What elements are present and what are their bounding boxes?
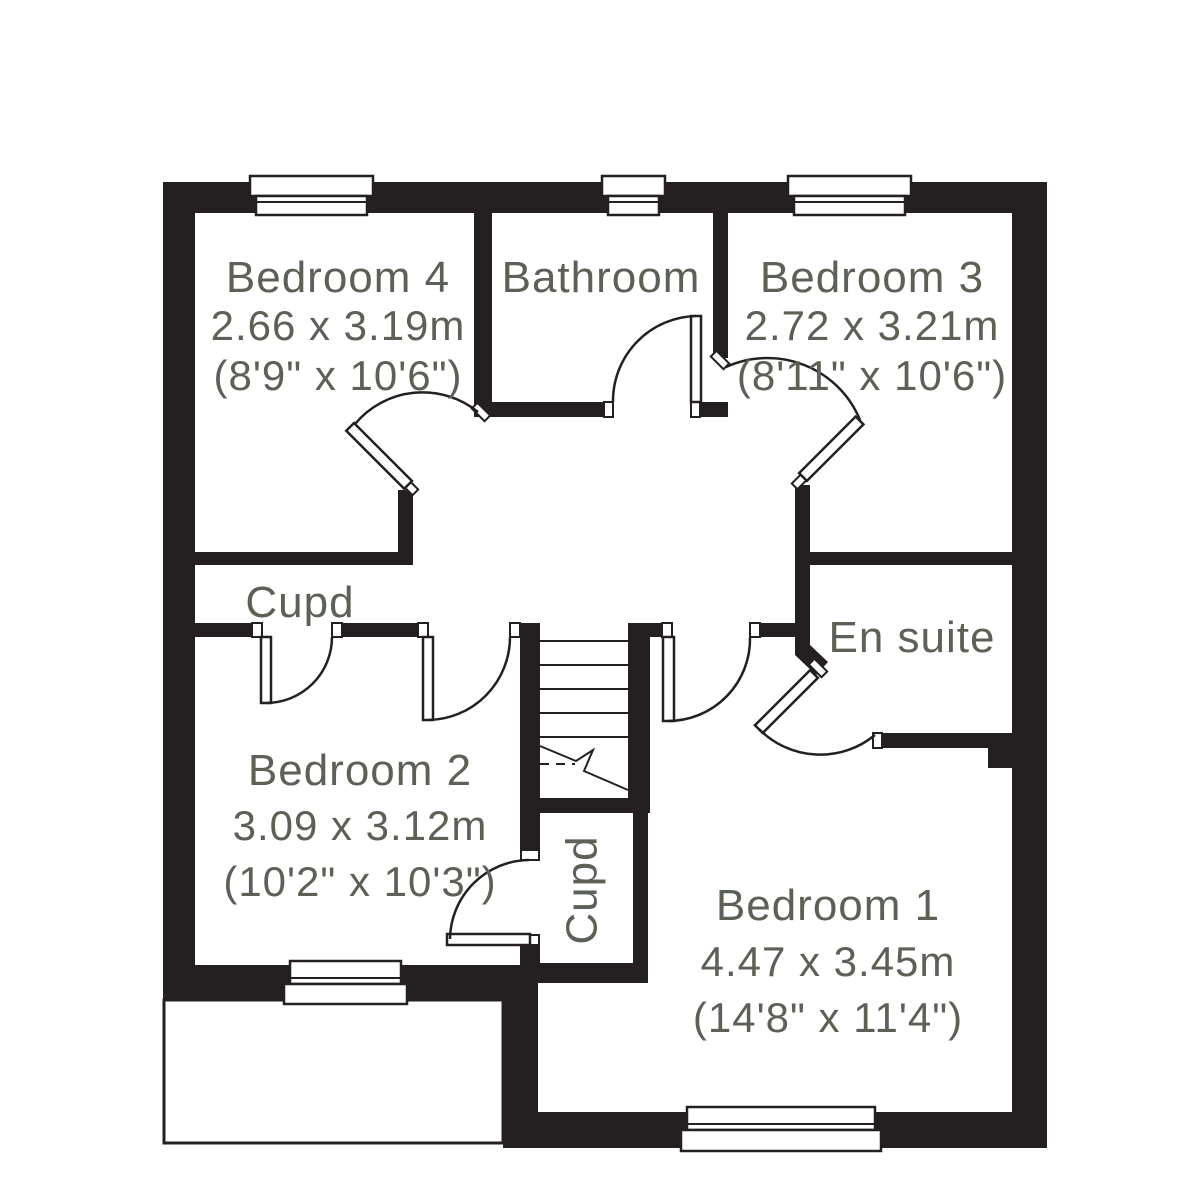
wall-bathroom-west: [474, 213, 492, 409]
wall-stair-east: [628, 623, 650, 813]
bedroom2-size-metric: 3.09 x 3.12m: [233, 802, 488, 849]
window-bedroom1: [681, 1107, 881, 1151]
window-bathroom: [602, 176, 665, 215]
wall-ensuite-south-step: [988, 748, 1012, 768]
bedroom3-size-imperial: (8'11" x 10'6"): [737, 352, 1007, 399]
wall-stair-west: [520, 623, 540, 850]
wall-ensuite-west: [795, 485, 810, 648]
wall-bathroom-east: [713, 213, 728, 358]
wall-stair-bottom: [520, 798, 650, 813]
bathroom-name: Bathroom: [502, 253, 701, 302]
wall-cupboard-bottom: [522, 963, 648, 983]
bedroom3-size-metric: 2.72 x 3.21m: [745, 302, 1000, 349]
cupboard-understairs-name: Cupd: [558, 835, 607, 944]
label-cupboard-landing: Cupd: [245, 578, 354, 627]
window-bedroom2: [284, 961, 407, 1004]
ensuite-name: En suite: [829, 613, 996, 662]
label-bathroom: Bathroom: [502, 253, 701, 302]
bedroom4-name: Bedroom 4: [226, 253, 450, 302]
wall-ensuite-south: [875, 733, 1012, 748]
wall-bathroom-south-left: [474, 402, 613, 417]
bedroom1-size-metric: 4.47 x 3.45m: [701, 938, 956, 985]
bedroom4-size-imperial: (8'9" x 10'6"): [214, 352, 463, 399]
wall-bedroom4-post: [398, 490, 413, 565]
wall-right: [1012, 182, 1047, 1148]
wall-bedroom4-south: [195, 552, 413, 565]
label-bedroom3: Bedroom 3 2.72 x 3.21m (8'11" x 10'6"): [737, 253, 1007, 399]
bedroom1-name: Bedroom 1: [716, 881, 940, 930]
label-bedroom1: Bedroom 1 4.47 x 3.45m (14'8" x 11'4"): [693, 881, 963, 1041]
wall-landing-seg1: [195, 623, 252, 637]
window-bedroom4: [250, 176, 373, 215]
label-bedroom4: Bedroom 4 2.66 x 3.19m (8'9" x 10'6"): [211, 253, 466, 399]
window-bedroom3: [788, 176, 911, 215]
wall-left: [163, 182, 195, 1000]
bedroom2-name: Bedroom 2: [248, 746, 472, 795]
cupboard-landing-name: Cupd: [245, 578, 354, 627]
lower-roof-outline: [164, 1000, 503, 1143]
bedroom2-size-imperial: (10'2" x 10'3"): [223, 858, 496, 905]
wall-landing-seg3: [760, 623, 797, 637]
floorplan-canvas: Bedroom 4 2.66 x 3.19m (8'9" x 10'6") Ba…: [0, 0, 1200, 1200]
label-bedroom2: Bedroom 2 3.09 x 3.12m (10'2" x 10'3"): [223, 746, 496, 905]
wall-cupboard-east: [633, 813, 648, 983]
label-cupboard-understairs: Cupd: [558, 835, 607, 944]
wall-ensuite-north: [795, 552, 1012, 565]
bedroom4-size-metric: 2.66 x 3.19m: [211, 302, 466, 349]
wall-bathroom-south-right: [700, 402, 728, 417]
bedroom3-name: Bedroom 3: [760, 253, 984, 302]
label-ensuite: En suite: [829, 613, 996, 662]
bedroom1-size-imperial: (14'8" x 11'4"): [693, 994, 963, 1041]
